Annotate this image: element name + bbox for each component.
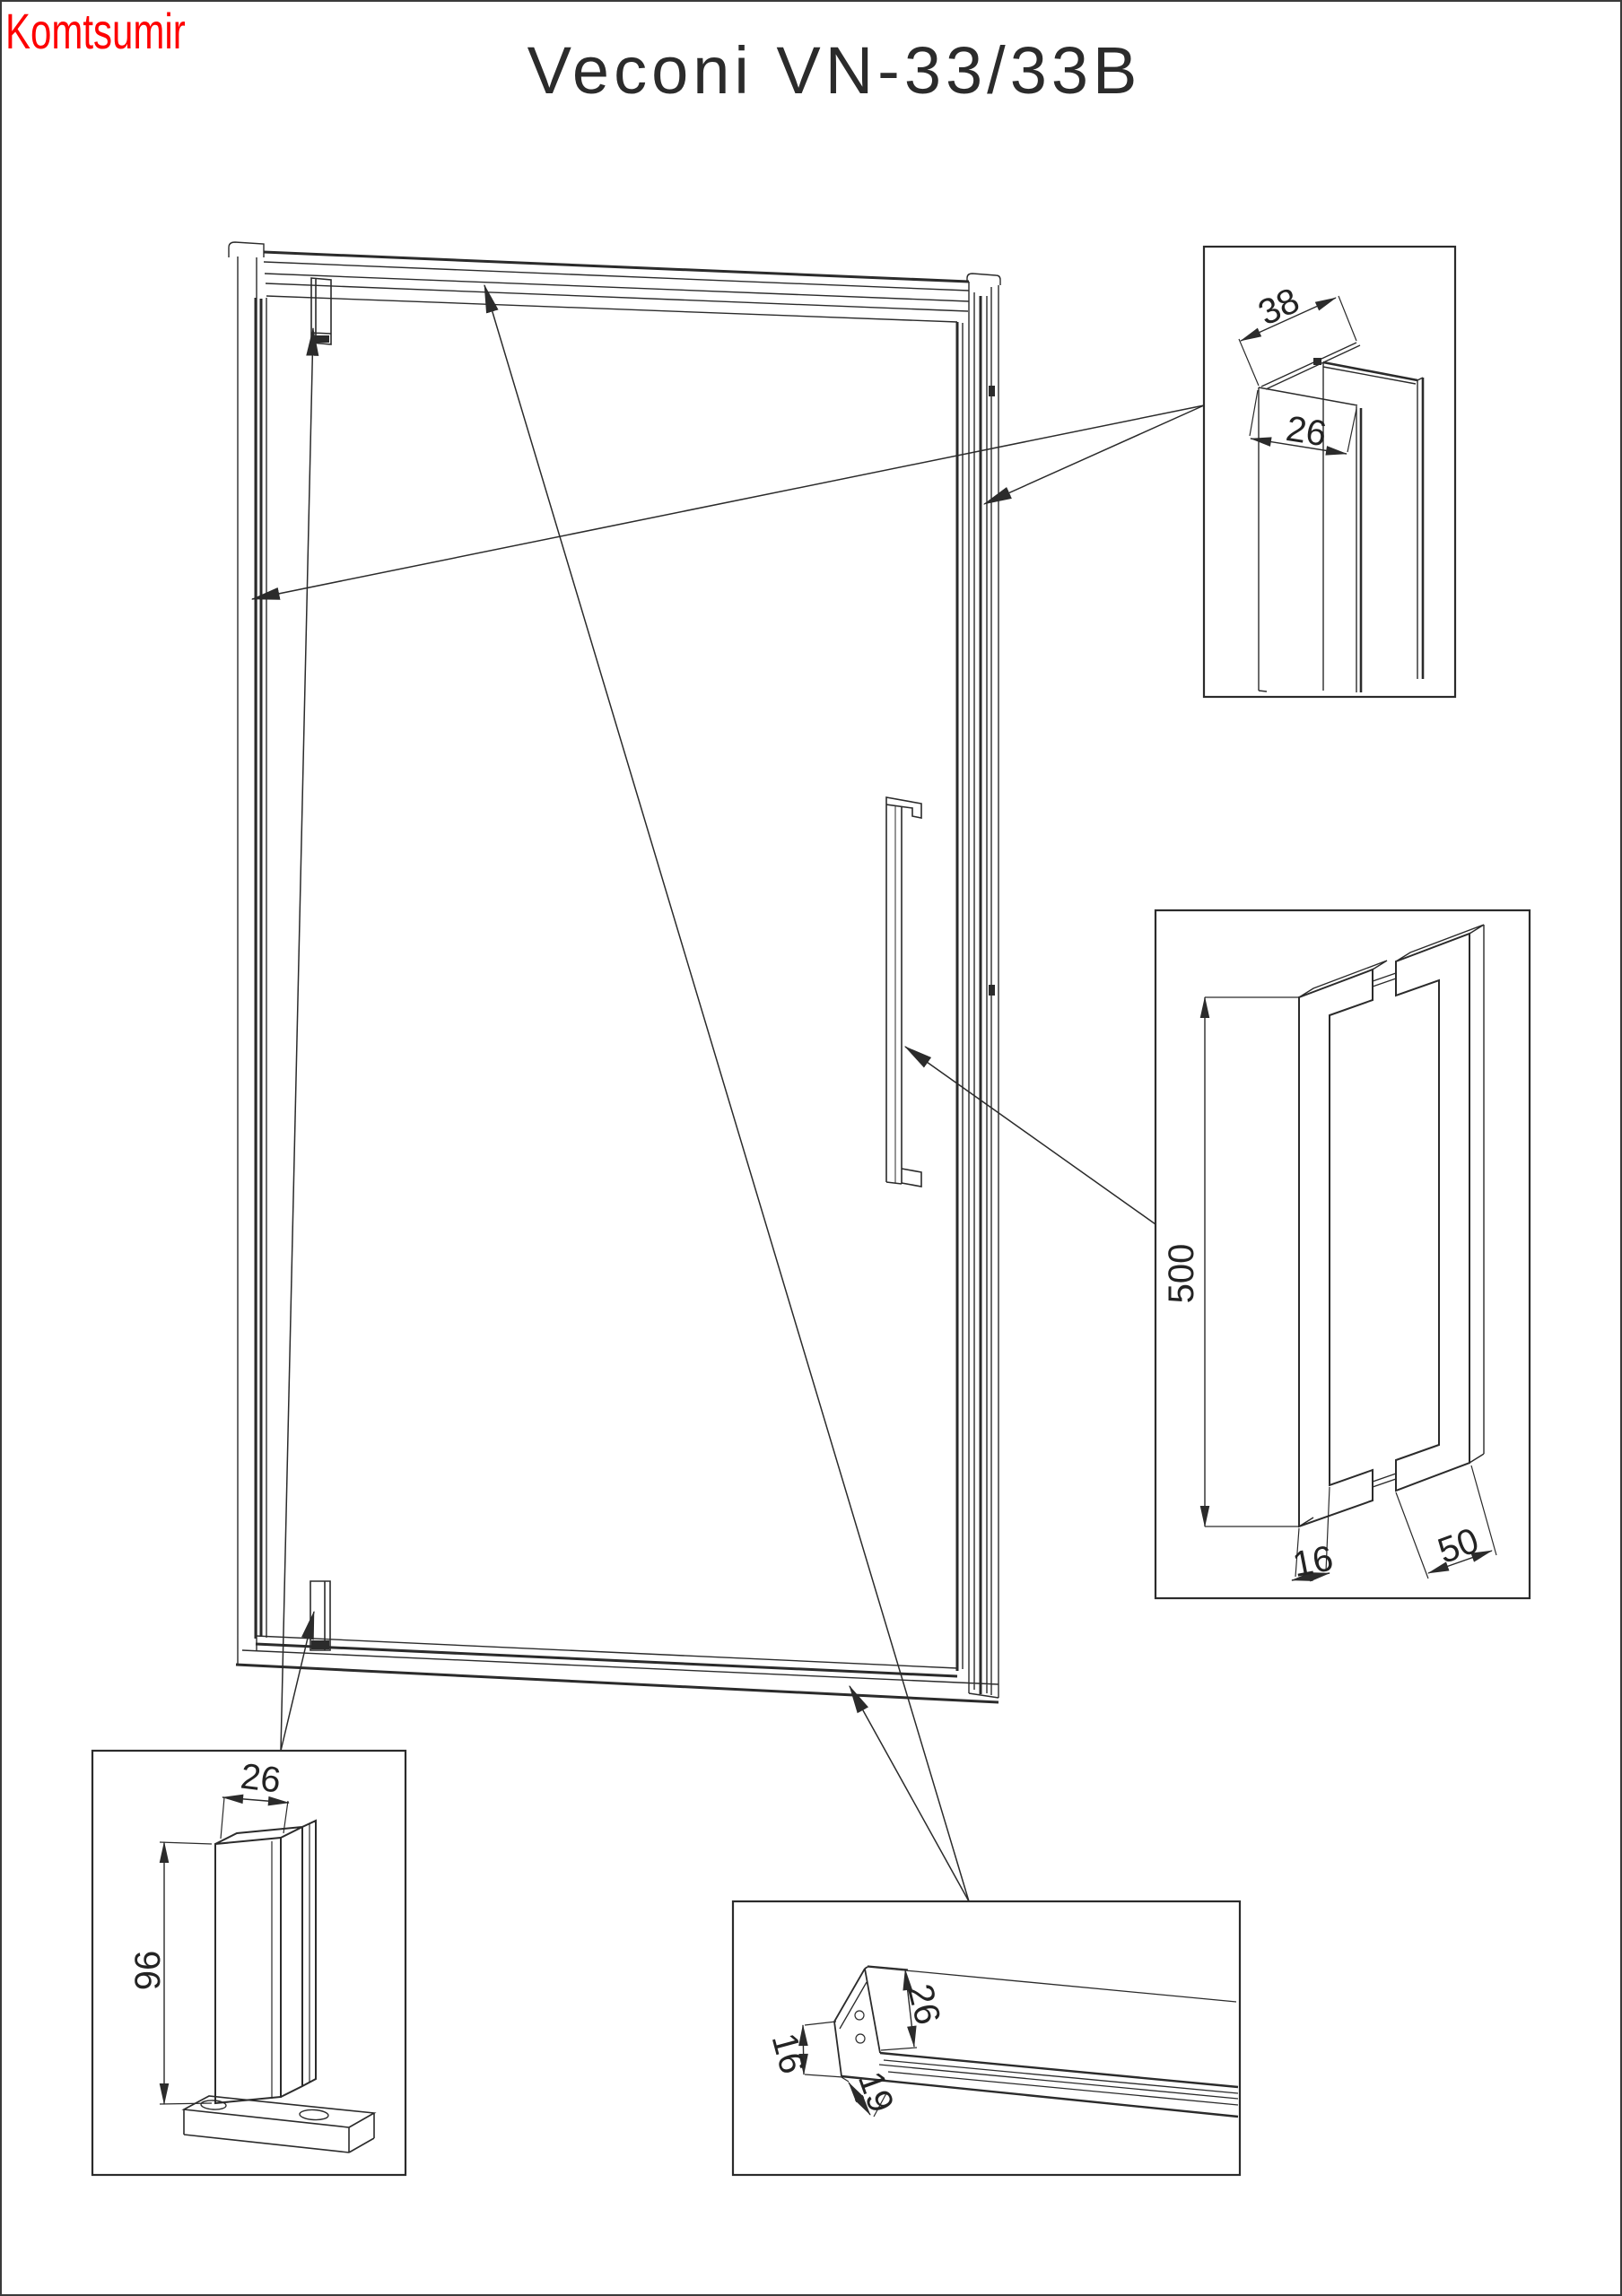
leader-handle-detail xyxy=(905,1047,1155,1224)
bottom-clip-foot xyxy=(311,1640,329,1649)
pivot-base-slot-right xyxy=(300,2109,329,2121)
dim-label-50: 50 xyxy=(1433,1521,1484,1572)
dim-label-96: 96 xyxy=(128,1951,168,1991)
detail-wall-profile: 38 26 xyxy=(1204,247,1455,697)
dim-label-38: 38 xyxy=(1252,281,1305,334)
bottom-rail-heavy-lines xyxy=(842,2053,1238,2117)
door-frame-heavy-edges xyxy=(236,252,998,1702)
rail-screw-channel-lower xyxy=(856,2034,865,2043)
handle-front-grip xyxy=(1299,970,1373,1526)
detail-bottom-rail: 26 16 19 xyxy=(733,1901,1240,2175)
handle-detail-box xyxy=(1155,910,1530,1598)
door-frame-light-edges xyxy=(229,242,1000,1698)
leader-lines xyxy=(252,285,1204,1901)
detail-handle: 500 16 50 xyxy=(1155,910,1530,1598)
wall-profile-lines xyxy=(1259,343,1423,692)
technical-drawing: 38 26 500 16 50 26 96 xyxy=(0,0,1622,2296)
dim-label-19: 19 xyxy=(850,2066,902,2118)
bottom-rail-profile-edges xyxy=(834,1967,880,2076)
handle-back-grip xyxy=(1396,934,1469,1491)
drawing-sheet: { "page": { "watermark": "Komtsumir", "t… xyxy=(0,0,1622,2296)
handle-3d-edges xyxy=(1299,925,1484,1526)
leader-profile-to-left-edge xyxy=(252,405,1204,599)
door-handle-outline xyxy=(886,797,921,1187)
top-pivot-clip xyxy=(311,278,331,344)
leader-pivot-to-top-clip xyxy=(281,328,313,1751)
dim-line-26-clamp xyxy=(222,1797,289,1803)
leader-pivot-to-bottom-clip xyxy=(281,1612,314,1751)
handle-extension-lines xyxy=(1205,997,1496,1578)
leader-rail-to-bottom-rail xyxy=(850,1686,969,1901)
dim-label-26-clamp: 26 xyxy=(239,1757,283,1801)
bottom-rail-detail-box xyxy=(733,1901,1240,2175)
top-clip-outline xyxy=(311,278,331,344)
dim-label-26-rail: 26 xyxy=(900,1980,947,2029)
rail-screw-channel-upper xyxy=(855,2011,864,2020)
dim-label-16-handle: 16 xyxy=(1289,1538,1336,1585)
dim-label-16-rail: 16 xyxy=(764,2029,813,2077)
door-handle xyxy=(886,797,921,1187)
dim-label-500: 500 xyxy=(1162,1244,1201,1304)
profile-joint-mark-lower xyxy=(989,985,995,996)
top-clip-foot xyxy=(315,335,329,343)
detail-pivot-clamp: 26 96 xyxy=(92,1751,405,2175)
pivot-clamp-body xyxy=(215,1821,316,2103)
bottom-rail-glass-and-lines xyxy=(840,1967,1238,2105)
wall-profile-joint-dot xyxy=(1313,358,1321,365)
door-assembly-view xyxy=(229,242,1000,1702)
pivot-base-block xyxy=(184,2096,374,2152)
pivot-clamp-inner-lines xyxy=(160,1797,310,2104)
wall-profile-dark-edges xyxy=(1323,362,1423,692)
profile-joint-mark-upper xyxy=(989,386,995,396)
dim-label-26-profile: 26 xyxy=(1284,409,1330,454)
pivot-base-slot-left xyxy=(201,2100,226,2109)
leader-profile-to-right-post xyxy=(984,405,1204,504)
